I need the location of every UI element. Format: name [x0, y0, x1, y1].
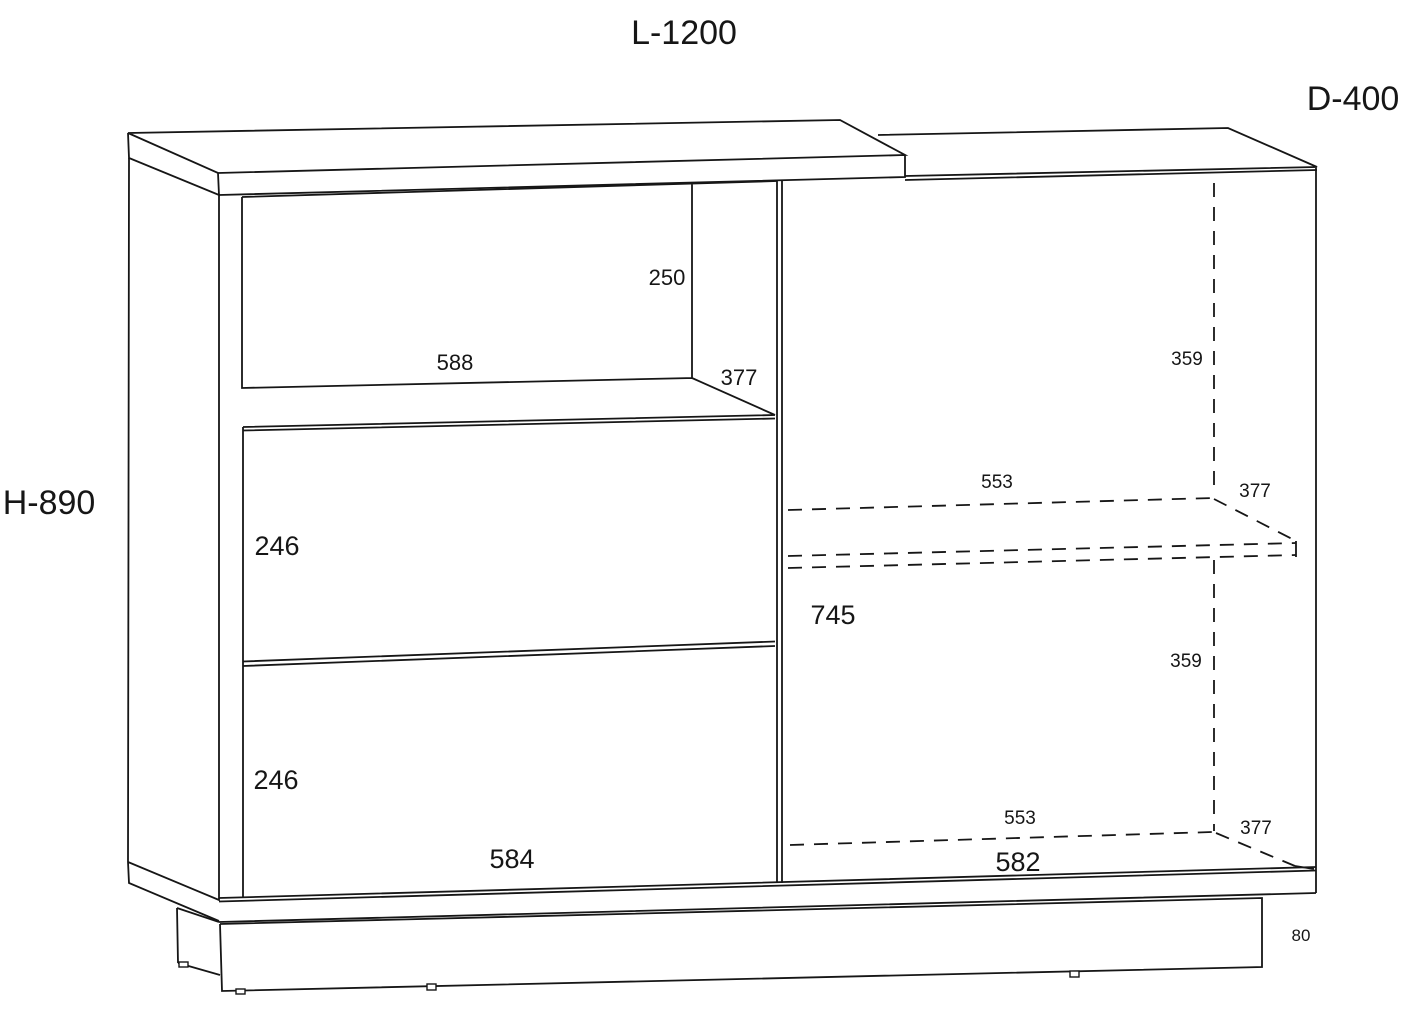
top-board-left-section [128, 120, 905, 195]
cabinet-technical-drawing-page: L-1200 D-400 H-890 250 588 377 359 553 3… [0, 0, 1413, 1015]
cabinet-line-drawing: L-1200 D-400 H-890 250 588 377 359 553 3… [0, 0, 1413, 1015]
plinth [177, 898, 1262, 991]
open-niche [242, 181, 777, 897]
foot-front-middle [427, 984, 436, 990]
drawer-divider-line [243, 642, 775, 667]
top-board-right-section [878, 128, 1317, 180]
right-compartment-hidden-edges [788, 183, 1296, 866]
dim-right-lower-gap: 359 [1170, 651, 1202, 672]
dim-lower-drawer-height: 246 [253, 765, 298, 795]
dim-right-upper-gap: 359 [1171, 349, 1203, 370]
bottom-band [219, 867, 1316, 922]
dim-plinth-height: 80 [1292, 926, 1311, 945]
dim-niche-height: 250 [649, 265, 686, 290]
dim-niche-depth: 377 [721, 365, 758, 390]
foot-back-left [179, 962, 188, 967]
dim-niche-width: 588 [437, 350, 474, 375]
dim-shelf-depth: 377 [1239, 481, 1271, 502]
dim-overall-height: H-890 [3, 484, 96, 522]
dim-right-inner-height: 745 [810, 600, 855, 630]
foot-front-left [236, 989, 245, 994]
dim-bottom-inner-width: 553 [1004, 808, 1036, 829]
dim-door-front-width: 582 [995, 847, 1040, 877]
dim-upper-drawer-height: 246 [254, 531, 299, 561]
dim-drawer-front-width: 584 [489, 844, 534, 874]
dim-bottom-inner-depth: 377 [1240, 818, 1272, 839]
dim-shelf-width: 553 [981, 472, 1013, 493]
left-side-panel [128, 158, 219, 921]
dim-overall-depth: D-400 [1307, 80, 1400, 118]
shelf-corner-marks [1295, 541, 1314, 869]
section-divider [777, 181, 782, 883]
foot-front-right [1070, 971, 1079, 977]
dim-overall-length: L-1200 [631, 14, 737, 52]
